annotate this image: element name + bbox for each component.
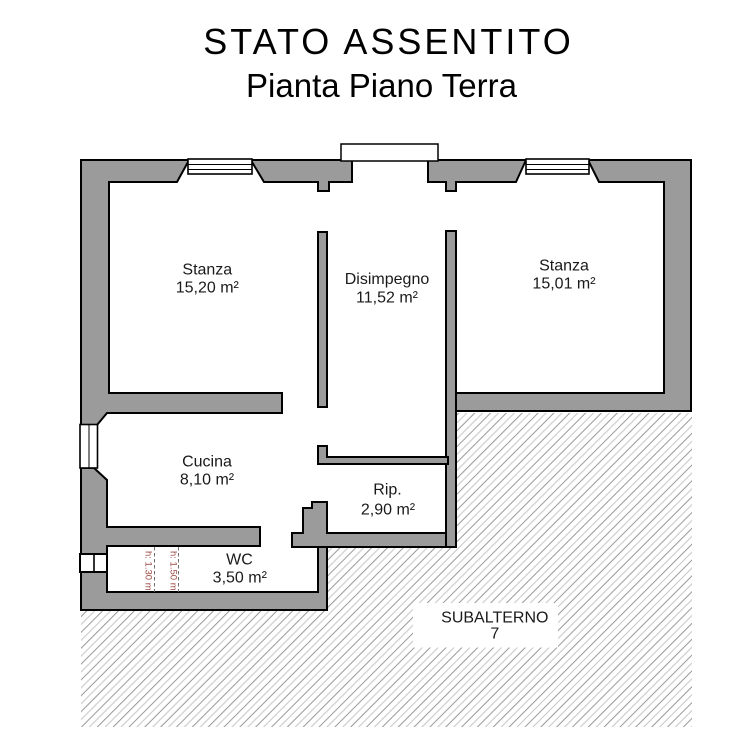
svg-text:3,50 m²: 3,50 m² <box>213 570 268 587</box>
svg-text:Cucina: Cucina <box>182 453 232 470</box>
svg-text:Disimpegno: Disimpegno <box>345 271 430 288</box>
svg-text:2,90 m²: 2,90 m² <box>361 502 416 519</box>
svg-text:15,01 m²: 15,01 m² <box>532 276 596 293</box>
svg-text:h: 1.50 m: h: 1.50 m <box>168 551 179 591</box>
svg-text:7: 7 <box>490 625 499 642</box>
svg-text:11,52 m²: 11,52 m² <box>356 290 419 307</box>
svg-text:15,20 m²: 15,20 m² <box>176 280 240 297</box>
svg-text:8,10 m²: 8,10 m² <box>180 471 235 488</box>
svg-text:h: 1.30 m: h: 1.30 m <box>143 551 154 591</box>
svg-text:SUBALTERNO: SUBALTERNO <box>441 609 548 626</box>
svg-text:Rip.: Rip. <box>373 482 401 499</box>
svg-text:Stanza: Stanza <box>182 262 232 279</box>
svg-text:Stanza: Stanza <box>539 258 589 275</box>
svg-text:WC: WC <box>226 552 253 569</box>
